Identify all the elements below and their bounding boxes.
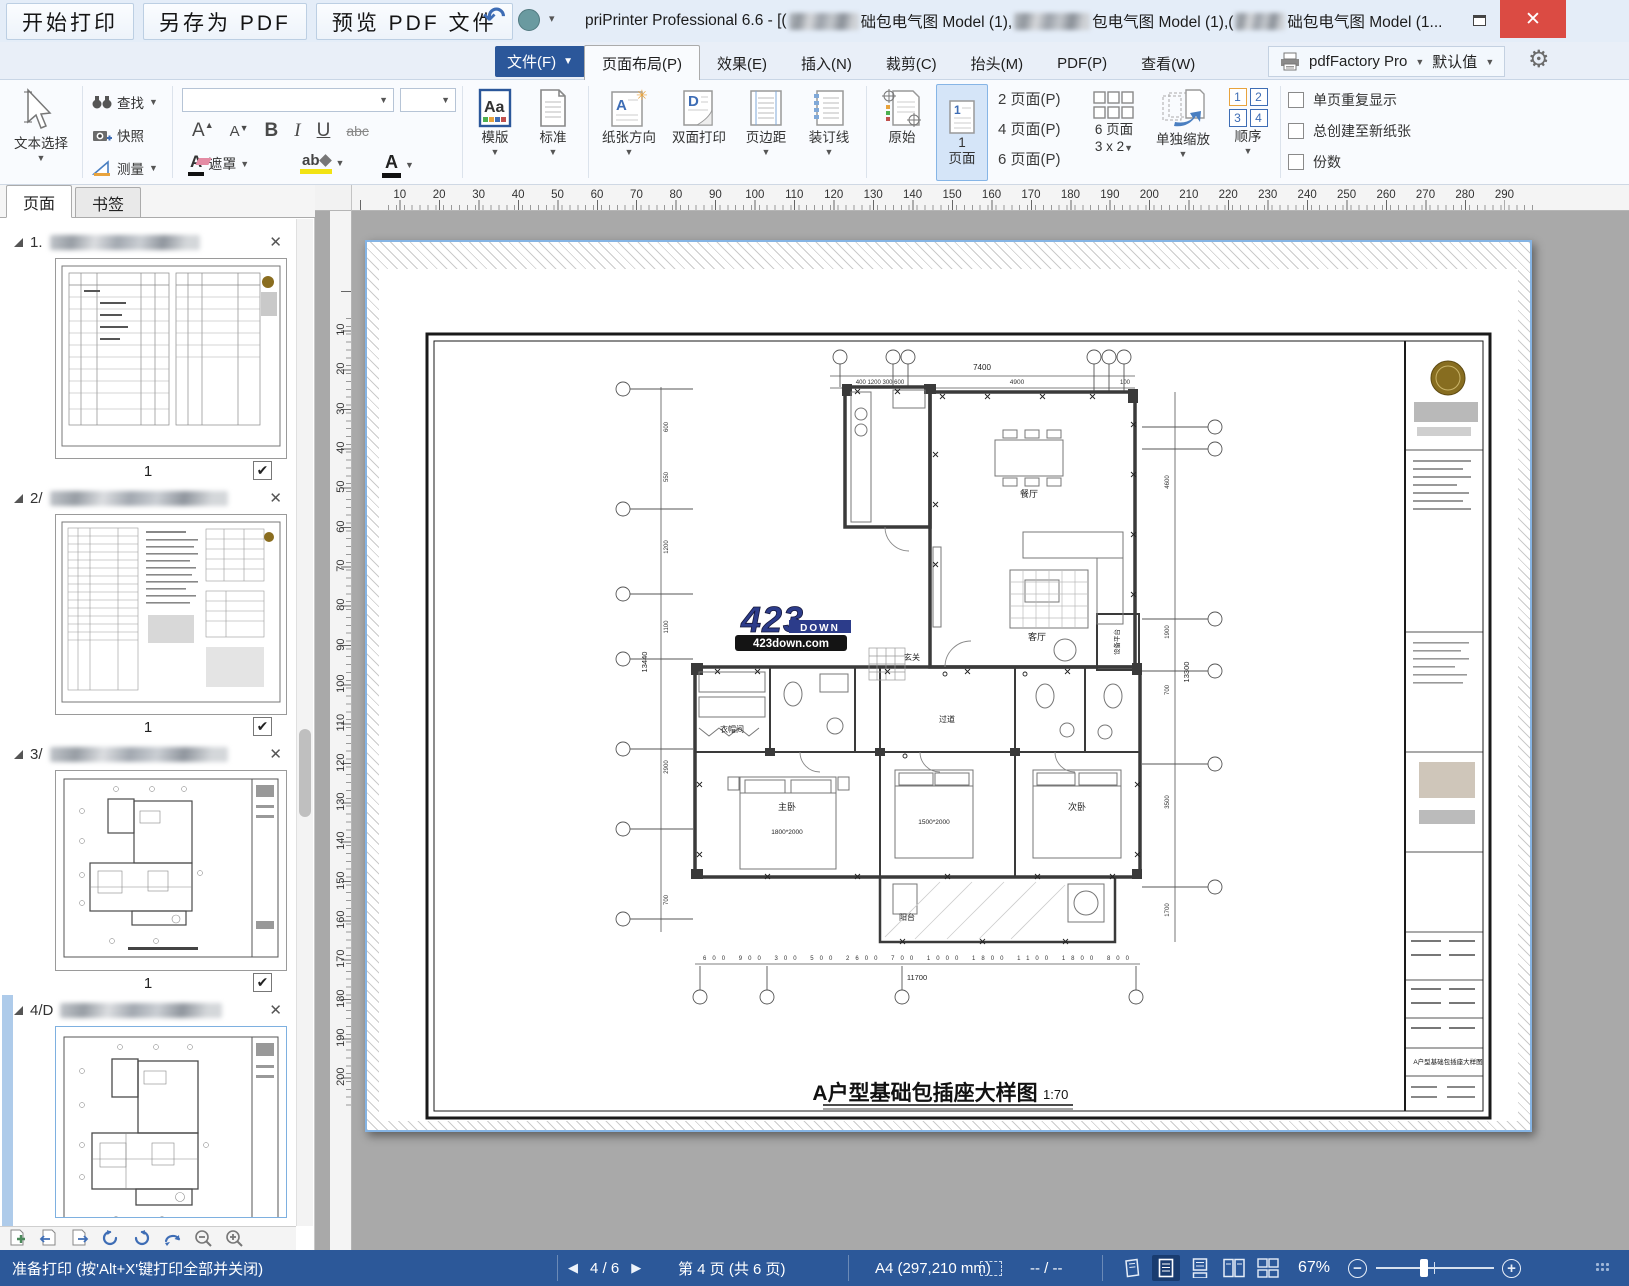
zoom-out-icon[interactable] — [194, 1229, 213, 1248]
svg-text:550: 550 — [664, 471, 670, 482]
h-ruler-number: 10 — [380, 185, 419, 210]
dim-bottom-total: 11700 — [907, 973, 927, 982]
layout-options: 单页重复显示总创建至新纸张份数 — [1288, 90, 1411, 172]
h-ruler-number: 100 — [735, 185, 774, 210]
svg-text:✳: ✳ — [636, 88, 648, 103]
binoculars-icon — [92, 94, 112, 110]
chevron-down-icon: ▼ — [825, 147, 834, 157]
order-number: 4 — [1250, 109, 1268, 127]
svg-text:4900: 4900 — [1010, 379, 1025, 386]
orientation-icon: A✳ — [608, 88, 650, 128]
checkbox-box[interactable] — [1288, 123, 1304, 139]
collapse-triangle-icon[interactable] — [14, 238, 23, 247]
strikethrough-button[interactable]: abc — [346, 123, 369, 139]
printer-name: pdfFactory Pro — [1309, 53, 1407, 70]
shrink-font-button[interactable]: A▼ — [230, 123, 249, 140]
scale-pages-icon — [1160, 88, 1206, 130]
rug-grid — [1010, 570, 1088, 628]
thumbnail-spec-doc — [56, 515, 286, 709]
watermark-423: 423 — [740, 599, 804, 640]
one-page-icon: 1 — [948, 100, 976, 134]
undo-icon[interactable]: ↶ — [483, 2, 506, 33]
move-page-right-icon[interactable] — [70, 1229, 89, 1248]
prev-page-icon[interactable]: ◀ — [568, 1260, 578, 1276]
svg-text:设备平台: 设备平台 — [1112, 629, 1121, 655]
document-icon — [537, 88, 569, 128]
page-checkbox[interactable]: ✔ — [253, 717, 272, 736]
two-pages-button[interactable]: 2 页面(P) — [998, 88, 1061, 109]
zoom-slider[interactable] — [1376, 1258, 1494, 1278]
quick-access-button[interactable]: 另存为 PDF — [143, 3, 307, 40]
svg-text:700: 700 — [664, 894, 670, 905]
h-ruler-number: 90 — [696, 185, 735, 210]
svg-text:衣帽间: 衣帽间 — [720, 724, 744, 734]
chevron-down-icon: ▼ — [240, 159, 249, 169]
redo-icon[interactable] — [518, 9, 540, 31]
svg-text:600: 600 — [664, 421, 670, 432]
vertical-ruler: 1020304050607080901001101201301401501601… — [330, 211, 352, 1250]
close-icon[interactable]: ✕ — [269, 1001, 282, 1019]
text-cursor-icon — [22, 88, 60, 134]
zoom-out-button[interactable]: − — [1348, 1259, 1367, 1278]
page-group-header[interactable]: 3/ ✕ — [0, 742, 296, 766]
checkbox-box[interactable] — [1288, 92, 1304, 108]
ribbon-checkbox[interactable]: 份数 — [1288, 152, 1411, 172]
chevron-down-icon: ▼ — [149, 163, 158, 173]
view-flip-icon[interactable] — [1118, 1255, 1146, 1281]
paper-size: A4 (297,210 mm) — [875, 1250, 991, 1286]
order-button[interactable]: 1234 顺序 ▼ — [1222, 88, 1274, 156]
svg-text:客厅: 客厅 — [1028, 631, 1046, 642]
restore-window-button[interactable] — [1462, 5, 1496, 35]
highlight-button[interactable]: ab ▼ — [300, 152, 344, 174]
page-group-1: 1. ✕ — [0, 230, 296, 483]
drawing-scale: 1:70 — [1043, 1087, 1068, 1102]
camera-icon — [92, 127, 112, 144]
quick-access-button[interactable]: 开始打印 — [6, 3, 134, 40]
dim-bottom-segments: 600 900 300 500 2600 700 1000 1800 1100 … — [703, 956, 1130, 962]
dim-top-segments: 400 1200 300 600 — [856, 380, 905, 386]
quick-access-toolbar: 开始打印另存为 PDF预览 PDF 文件 — [6, 3, 513, 40]
title-text: priPrinter Professional 6.6 - [( — [585, 12, 787, 30]
page-viewport[interactable]: A户型基础包插座大样图 — [352, 211, 1629, 1250]
chevron-down-icon: ▼ — [549, 147, 558, 157]
printer-profile[interactable]: 默认值 — [1432, 51, 1477, 72]
room-labels: 餐厅 客厅 玄关 过道 衣帽间 主卧 次卧 阳台 设备平台 1800*2000 … — [720, 488, 1121, 922]
h-ruler-number: 270 — [1406, 185, 1445, 210]
h-ruler-number: 30 — [459, 185, 498, 210]
ribbon-tab[interactable]: 抬头(M) — [954, 47, 1041, 80]
ribbon-tab[interactable]: PDF(P) — [1040, 47, 1124, 80]
svg-text:3500: 3500 — [1165, 795, 1171, 809]
stamp-logo — [262, 276, 274, 288]
chevron-down-icon: ▼ — [1415, 57, 1424, 67]
six-pages-3x2-button[interactable]: 6 页面 3 x 2▼ — [1086, 90, 1142, 154]
ribbon-tabs: 页面布局(P)效果(E)插入(N)裁剪(C)抬头(M)PDF(P)查看(W) — [584, 45, 1212, 80]
checkbox-label: 总创建至新纸张 — [1313, 121, 1411, 141]
titlebar: 开始打印另存为 PDF预览 PDF 文件 ↶ ▾ priPrinter Prof… — [0, 0, 1629, 42]
chevron-down-icon: ▼ — [1244, 146, 1253, 156]
zoom-slider-handle[interactable] — [1420, 1259, 1428, 1277]
title-block: A户型基础包插座大样图 — [1405, 361, 1483, 1098]
svg-text:1: 1 — [954, 103, 961, 117]
h-ruler-number: 210 — [1169, 185, 1208, 210]
move-page-left-icon[interactable] — [39, 1229, 58, 1248]
duplex-icon: D — [679, 88, 719, 128]
svg-text:1700: 1700 — [1165, 903, 1171, 917]
scrollbar-thumb[interactable] — [299, 729, 311, 817]
mask-button[interactable]: A 遮罩 ▼ — [188, 152, 249, 176]
close-icon[interactable]: ✕ — [269, 489, 282, 507]
svg-text:A: A — [616, 97, 627, 114]
svg-text:100: 100 — [1120, 380, 1131, 386]
pages-sidebar: 页面 书签 1. ✕ — [0, 185, 315, 1250]
close-icon[interactable]: ✕ — [269, 233, 282, 251]
scale-individually-button[interactable]: 单独缩放 ▼ — [1148, 88, 1218, 159]
cad-drawing: A户型基础包插座大样图 — [425, 332, 1492, 1120]
zoom-level: 67% — [1298, 1250, 1330, 1286]
chevron-down-icon: ▼ — [563, 56, 573, 67]
italic-button[interactable]: I — [294, 120, 300, 142]
underline-button[interactable]: U — [317, 120, 331, 142]
h-ruler-number: 220 — [1209, 185, 1248, 210]
thumbnail-floorplan — [56, 1027, 286, 1218]
ribbon-tab[interactable]: 插入(N) — [784, 47, 869, 80]
ruler-icon — [92, 160, 112, 177]
svg-text:过道: 过道 — [939, 714, 955, 724]
drawing-title: A户型基础包插座大样图 1:70 — [812, 1081, 1073, 1109]
drawing-frame: A户型基础包插座大样图 — [425, 332, 1492, 1120]
sidebar-toolbar — [0, 1226, 296, 1250]
ribbon-tab[interactable]: 查看(W) — [1124, 47, 1212, 80]
next-page-icon[interactable]: ▶ — [631, 1260, 641, 1276]
chevron-down-icon: ▼ — [1485, 57, 1494, 67]
page-count: 第 4 页 (共 6 页) — [678, 1250, 786, 1286]
h-ruler-number: 260 — [1366, 185, 1405, 210]
order-number: 3 — [1229, 109, 1247, 127]
horizontal-ruler: 1020304050607080901001101201301401501601… — [352, 185, 1629, 211]
ruler-corner — [315, 185, 352, 211]
template-icon: Aa — [477, 88, 513, 128]
h-ruler-number: 230 — [1248, 185, 1287, 210]
file-menu-button[interactable]: 文件(F)▼ — [495, 46, 585, 77]
h-ruler-number: 170 — [1011, 185, 1050, 210]
rotate-cw-icon[interactable] — [101, 1229, 120, 1248]
ribbon-checkbox[interactable]: 总创建至新纸张 — [1288, 121, 1411, 141]
sidebar-scrollbar[interactable] — [296, 219, 313, 1226]
selection-icon[interactable] — [980, 1261, 1002, 1276]
svg-text:主卧: 主卧 — [778, 801, 796, 812]
window-title: priPrinter Professional 6.6 - [(础包电气图 Mo… — [585, 0, 1442, 42]
font-size-combo[interactable]: ▼ — [400, 88, 456, 112]
redacted-text — [50, 747, 228, 762]
redacted-text — [1235, 13, 1285, 30]
chevron-down-icon: ▼ — [1179, 149, 1188, 159]
original-icon — [881, 88, 923, 128]
checkbox-label: 份数 — [1313, 152, 1341, 172]
page-order-icon: 1234 — [1229, 88, 1268, 127]
tab-bookmarks[interactable]: 书签 — [75, 187, 141, 217]
h-ruler-number: 140 — [893, 185, 932, 210]
ribbon-tab[interactable]: 裁剪(C) — [869, 47, 954, 80]
balcony-hatch — [885, 882, 1065, 939]
bed-size-label: 1500*2000 — [918, 819, 950, 826]
page-group-header[interactable]: 4/D ✕ — [0, 998, 296, 1022]
redacted-text — [50, 235, 200, 250]
four-pages-button[interactable]: 4 页面(P) — [998, 118, 1061, 139]
redacted-text — [50, 491, 228, 506]
collapse-triangle-icon[interactable] — [14, 1006, 23, 1015]
h-ruler-number: 240 — [1287, 185, 1326, 210]
selection-info: -- / -- — [1030, 1250, 1062, 1286]
svg-text:700: 700 — [1165, 684, 1171, 695]
order-number: 1 — [1229, 88, 1247, 106]
svg-text:餐厅: 餐厅 — [1020, 488, 1038, 499]
h-ruler-number: 60 — [577, 185, 616, 210]
grow-font-button[interactable]: A▲ — [192, 120, 214, 142]
h-ruler-number: 150 — [932, 185, 971, 210]
rotate-180-icon[interactable] — [163, 1229, 182, 1248]
pen-icon — [319, 154, 332, 167]
thumbnail-page-number: 1 — [144, 719, 152, 736]
view-continuous-icon[interactable] — [1186, 1255, 1214, 1281]
svg-text:4600: 4600 — [1165, 475, 1171, 489]
h-ruler-number: 160 — [972, 185, 1011, 210]
svg-text:Aa: Aa — [484, 99, 505, 116]
checkbox-box[interactable] — [1288, 154, 1304, 170]
template-button[interactable]: Aa 模版 ▼ — [468, 88, 522, 157]
zoom-in-button[interactable]: + — [1502, 1259, 1521, 1278]
close-window-button[interactable]: ✕ — [1500, 0, 1566, 38]
ribbon-tab[interactable]: 页面布局(P) — [584, 45, 700, 80]
gutter-button[interactable]: 装订线 ▼ — [800, 88, 858, 157]
chevron-down-icon: ▼ — [37, 153, 46, 163]
walls — [695, 387, 1140, 942]
h-ruler-number: 180 — [1051, 185, 1090, 210]
titleblock-drawing-name: A户型基础包插座大样图 — [1413, 1057, 1482, 1066]
h-ruler-number: 110 — [775, 185, 814, 210]
status-message: 准备打印 (按'Alt+X'键打印全部并关闭) — [12, 1250, 263, 1286]
view-facing-icon[interactable] — [1220, 1255, 1248, 1281]
preview-canvas: 1020304050607080901001101201301401501601… — [315, 185, 1629, 1250]
page-group-4: 4/D ✕ — [0, 998, 296, 1218]
dimension-grid: 7400 400 1200 300 600 4900 100 600 900 3… — [616, 350, 1222, 1004]
page-thumbnail[interactable] — [55, 770, 287, 971]
snapshot-button[interactable]: 快照 — [92, 125, 144, 145]
page-checkbox[interactable]: ✔ — [253, 461, 272, 480]
page-group-2: 2/ ✕ — [0, 486, 296, 739]
thumbnail-page-number: 1 — [144, 463, 152, 480]
chevron-down-icon: ▼ — [1124, 143, 1133, 153]
svg-text:1900: 1900 — [1165, 625, 1171, 639]
chevron-down-icon: ▼ — [625, 147, 634, 157]
dim-right-total: 13300 — [1182, 662, 1191, 683]
chevron-down-icon: ▼ — [441, 95, 450, 105]
svg-text:2900: 2900 — [664, 760, 670, 774]
app-window: 开始打印另存为 PDF预览 PDF 文件 ↶ ▾ priPrinter Prof… — [0, 0, 1629, 1286]
page-group-header[interactable]: 2/ ✕ — [0, 486, 296, 510]
font-color-button[interactable]: A ▼ — [382, 152, 414, 178]
h-ruler-number: 190 — [1090, 185, 1129, 210]
order-number: 2 — [1250, 88, 1268, 106]
font-name-combo[interactable]: ▼ — [182, 88, 394, 112]
checkbox-label: 单页重复显示 — [1313, 90, 1397, 110]
statusbar: 准备打印 (按'Alt+X'键打印全部并关闭) ◀ 4 / 6 ▶ 第 4 页 … — [0, 1250, 1629, 1286]
ribbon-checkbox[interactable]: 单页重复显示 — [1288, 90, 1411, 110]
watermark-url: 423down.com — [753, 638, 829, 650]
chevron-down-icon: ▼ — [491, 147, 500, 157]
thumbnail-floorplan — [56, 771, 286, 965]
orientation-button[interactable]: A✳ 纸张方向 ▼ — [596, 88, 662, 157]
redacted-text — [1014, 13, 1090, 30]
gutter-icon — [811, 88, 847, 128]
find-button[interactable]: 查找▼ — [92, 92, 158, 112]
close-icon[interactable]: ✕ — [269, 745, 282, 763]
collapse-triangle-icon[interactable] — [14, 494, 23, 503]
h-ruler-number: 250 — [1327, 185, 1366, 210]
add-page-icon[interactable] — [8, 1229, 27, 1248]
text-select-button[interactable]: 文本选择 ▼ — [10, 88, 72, 163]
bed-size-label: 1800*2000 — [771, 829, 803, 836]
original-button[interactable]: 原始 — [874, 88, 930, 145]
standard-button[interactable]: 标准 ▼ — [526, 88, 580, 157]
thumbnail-page-number: 1 — [144, 975, 152, 992]
quick-access-dropdown-icon[interactable]: ▾ — [549, 12, 555, 25]
grid-3x2-icon — [1092, 90, 1136, 120]
h-ruler-number: 40 — [498, 185, 537, 210]
one-page-button[interactable]: 1 1 页面 — [936, 84, 988, 181]
h-ruler-number: 290 — [1485, 185, 1524, 210]
margins-button[interactable]: 页边距 ▼ — [736, 88, 796, 157]
page-thumbnail[interactable] — [55, 514, 287, 715]
h-ruler-number: 120 — [814, 185, 853, 210]
collapse-triangle-icon[interactable] — [14, 750, 23, 759]
h-ruler-number: 130 — [853, 185, 892, 210]
sidebar-tabs: 页面 书签 — [0, 185, 315, 218]
watermark: 423 DOWN 423down.com — [735, 599, 851, 651]
svg-text:次卧: 次卧 — [1068, 801, 1086, 812]
printer-icon — [1279, 52, 1301, 71]
entry-hatch — [869, 648, 905, 680]
gear-icon[interactable]: ⚙ — [1528, 45, 1550, 74]
resize-grip[interactable] — [1596, 1263, 1611, 1273]
chevron-down-icon: ▼ — [762, 147, 771, 157]
printer-selector[interactable]: pdfFactory Pro ▼ 默认值 ▼ — [1268, 46, 1505, 77]
svg-text:玄关: 玄关 — [904, 652, 920, 662]
zoom-in-icon[interactable] — [225, 1229, 244, 1248]
duplex-button[interactable]: D 双面打印 — [666, 88, 732, 145]
view-continuous-facing-icon[interactable] — [1254, 1255, 1282, 1281]
chevron-down-icon: ▼ — [336, 158, 345, 168]
dim-left-total: 13440 — [640, 652, 649, 673]
measure-button[interactable]: 测量▼ — [92, 158, 158, 178]
ribbon: 文本选择 ▼ 查找▼ 快照 测量▼ ▼ ▼ A▲ A▼ B I U abc — [0, 80, 1629, 185]
page-checkbox[interactable]: ✔ — [253, 973, 272, 992]
margins-icon — [747, 88, 785, 128]
redacted-text — [60, 1003, 222, 1018]
h-ruler-number: 80 — [656, 185, 695, 210]
svg-text:A户型基础包插座大样图: A户型基础包插座大样图 — [812, 1081, 1037, 1105]
svg-text:1200: 1200 — [664, 540, 670, 554]
page-group-3: 3/ ✕ — [0, 742, 296, 995]
watermark-down: DOWN — [800, 623, 840, 634]
menubar: 文件(F)▼ 页面布局(P)效果(E)插入(N)裁剪(C)抬头(M)PDF(P)… — [0, 42, 1629, 80]
h-ruler-number: 20 — [419, 185, 458, 210]
view-single-page-icon[interactable] — [1152, 1255, 1180, 1281]
redacted-text — [789, 13, 859, 30]
h-ruler-number: 50 — [538, 185, 577, 210]
h-ruler-number: 280 — [1445, 185, 1484, 210]
bold-button[interactable]: B — [265, 120, 279, 142]
chevron-down-icon: ▼ — [379, 95, 388, 105]
svg-text:阳台: 阳台 — [899, 912, 915, 922]
page-thumbnail[interactable] — [55, 258, 287, 459]
rotate-ccw-icon[interactable] — [132, 1229, 151, 1248]
dim-top-total: 7400 — [973, 363, 991, 372]
chevron-down-icon: ▼ — [149, 97, 158, 107]
chevron-down-icon: ▼ — [405, 160, 414, 170]
six-pages-button[interactable]: 6 页面(P) — [998, 148, 1061, 169]
preview-page[interactable]: A户型基础包插座大样图 — [365, 240, 1532, 1132]
svg-text:D: D — [688, 93, 699, 110]
tab-pages[interactable]: 页面 — [6, 185, 72, 218]
svg-text:1100: 1100 — [664, 620, 670, 634]
page-nav-indicator: 4 / 6 — [590, 1260, 619, 1277]
h-ruler-number: 70 — [617, 185, 656, 210]
h-ruler-number: 200 — [1130, 185, 1169, 210]
thumbnail-table-doc — [56, 259, 286, 453]
page-thumbnail-selected[interactable] — [55, 1026, 287, 1218]
ribbon-tab[interactable]: 效果(E) — [700, 47, 784, 80]
page-group-header[interactable]: 1. ✕ — [0, 230, 296, 254]
